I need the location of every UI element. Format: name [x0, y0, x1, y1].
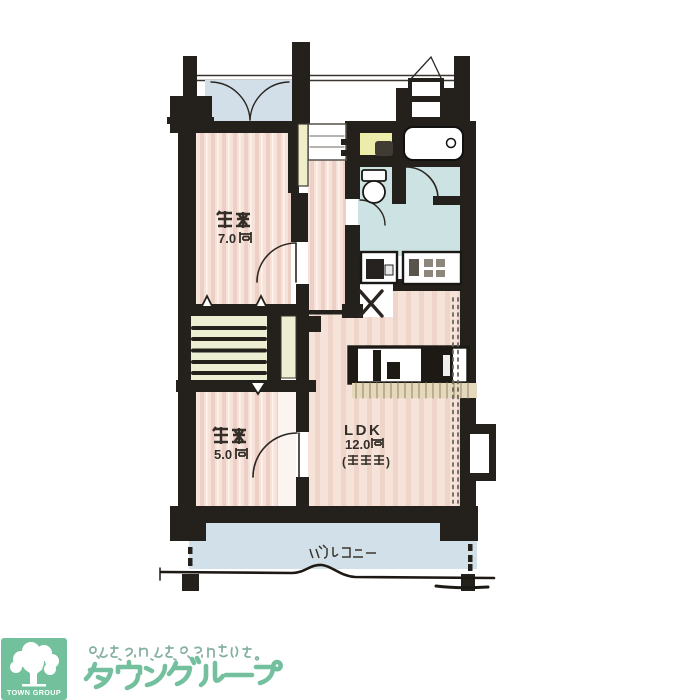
- svg-text:(: (: [342, 455, 346, 469]
- svg-text:TOWN GROUP: TOWN GROUP: [7, 688, 61, 697]
- svg-text:12.0: 12.0: [345, 437, 370, 452]
- svg-text:5.0: 5.0: [214, 447, 232, 462]
- svg-text:): ): [386, 455, 390, 469]
- svg-text:7.0: 7.0: [218, 231, 236, 246]
